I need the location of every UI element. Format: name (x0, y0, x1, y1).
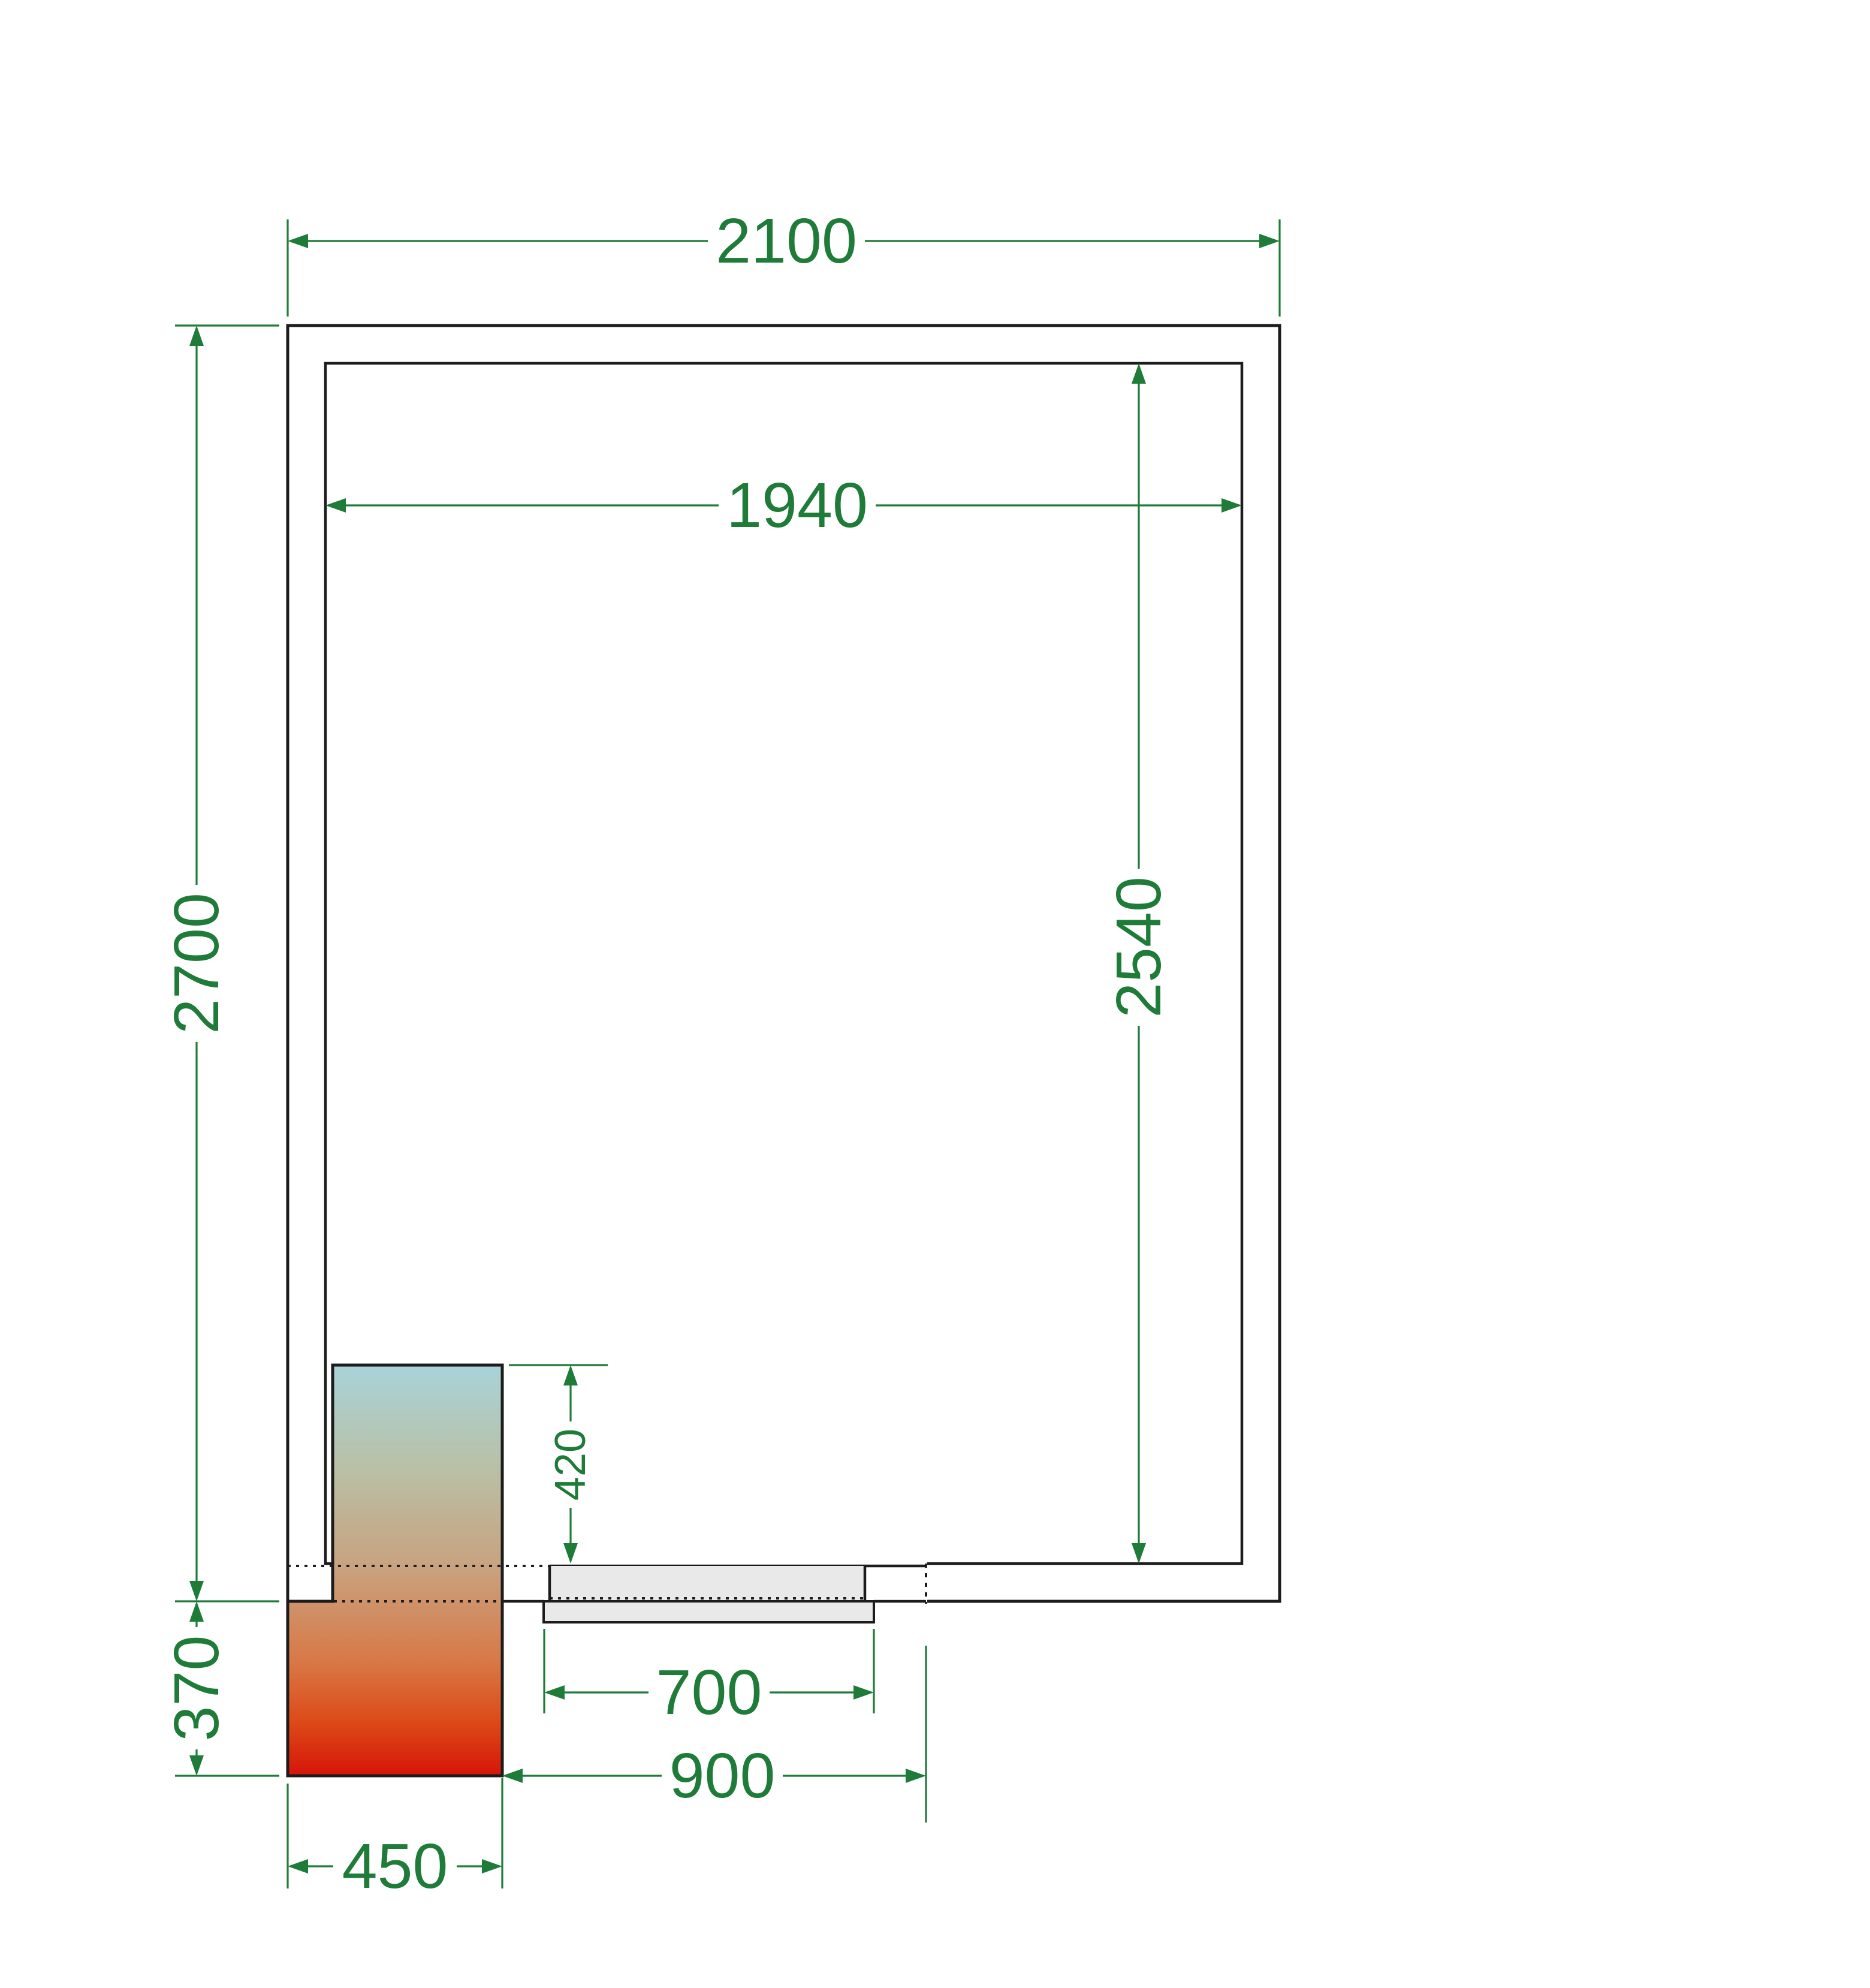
door-panel-outside (544, 1601, 874, 1622)
arrow-down-icon (189, 1581, 204, 1601)
dim-unit-outside-depth: 370 (161, 1601, 279, 1776)
dim-label-outer-width: 2100 (716, 206, 857, 276)
arrow-left-icon (288, 234, 308, 248)
dim-label-unit-width: 450 (342, 1831, 448, 1902)
dim-label-inner-depth: 2540 (1103, 876, 1174, 1018)
arrow-up-icon (189, 326, 204, 346)
drawing-sheet: 2100 1940 2700 370 2540 (0, 0, 1870, 1988)
arrow-right-icon (482, 1859, 502, 1873)
arrow-right-icon (1259, 234, 1280, 248)
door-leaf-in-wall (550, 1566, 865, 1601)
sliding-door (502, 1564, 926, 1622)
arrow-up-icon (189, 1601, 204, 1622)
dim-label-door-opening-width: 900 (669, 1740, 776, 1811)
dim-outer-depth: 2700 (161, 326, 279, 1601)
dim-label-inner-width: 1940 (726, 470, 868, 541)
arrow-left-icon (288, 1859, 308, 1873)
dim-label-door-leaf-width: 700 (656, 1657, 762, 1728)
dim-label-unit-inside-depth: 420 (547, 1429, 595, 1501)
arrow-left-icon (544, 1685, 565, 1700)
arrow-right-icon (906, 1769, 926, 1783)
dim-label-unit-outside-depth: 370 (161, 1635, 232, 1742)
arrow-down-icon (189, 1755, 204, 1776)
arrow-right-icon (853, 1685, 874, 1700)
dim-outer-width: 2100 (288, 206, 1280, 317)
dim-unit-width: 450 (288, 1778, 502, 1902)
arrow-left-icon (502, 1769, 523, 1783)
dim-label-outer-depth: 2700 (161, 893, 232, 1034)
plan-drawing: 2100 1940 2700 370 2540 (0, 0, 1870, 1988)
dim-door-leaf-width: 700 (544, 1629, 874, 1728)
